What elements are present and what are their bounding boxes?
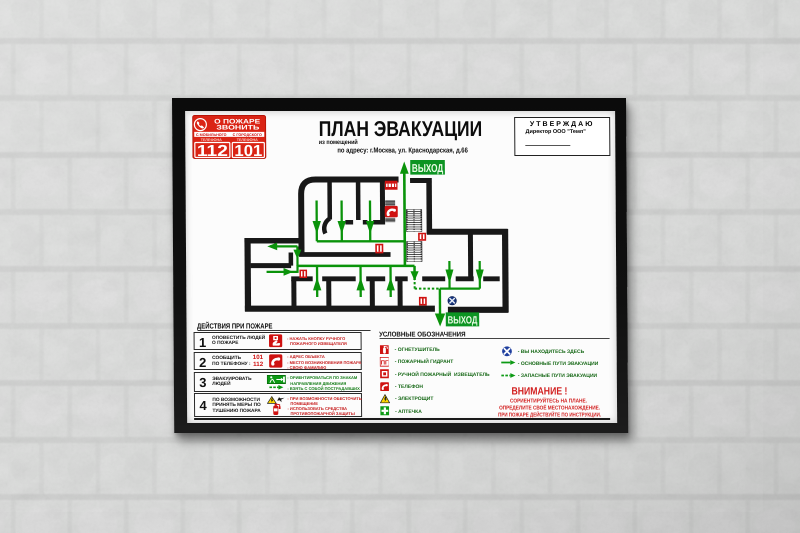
svg-text:ВЫХОД: ВЫХОД — [412, 163, 443, 175]
svg-text:ТЕЛЕФОНА: ТЕЛЕФОНА — [201, 138, 222, 142]
svg-text:ТЕЛЕФОНА: ТЕЛЕФОНА — [237, 138, 258, 142]
svg-text:С ГОРОДСКОГО: С ГОРОДСКОГО — [233, 133, 262, 137]
svg-text:ПРИ ПОЖАРЕ ДЕЙСТВУЙТЕ ПО ИНСТР: ПРИ ПОЖАРЕ ДЕЙСТВУЙТЕ ПО ИНСТРУКЦИИ. — [498, 410, 601, 418]
svg-text:СОРИЕНТИРУЙТЕСЬ НА ПЛАНЕ.: СОРИЕНТИРУЙТЕСЬ НА ПЛАНЕ. — [510, 396, 587, 404]
svg-text:ПЛАН ЭВАКУАЦИИ: ПЛАН ЭВАКУАЦИИ — [319, 117, 483, 141]
svg-text:ВЫХОД: ВЫХОД — [448, 314, 478, 326]
svg-text:ЗВОНИТЬ: ЗВОНИТЬ — [216, 124, 259, 131]
svg-text:ВНИМАНИЕ !: ВНИМАНИЕ ! — [511, 386, 567, 398]
svg-text:по адресу: г.Москва, ул. Красн: по адресу: г.Москва, ул. Краснодарская, … — [337, 146, 468, 155]
svg-text:С МОБИЛЬНОГО: С МОБИЛЬНОГО — [196, 133, 227, 137]
svg-text:112: 112 — [197, 143, 228, 159]
svg-text:ПГ: ПГ — [380, 360, 388, 366]
svg-text:ОПРЕДЕЛИТЕ СВОЁ МЕСТОНАХОЖДЕНИ: ОПРЕДЕЛИТЕ СВОЁ МЕСТОНАХОЖДЕНИЕ. — [499, 404, 600, 411]
